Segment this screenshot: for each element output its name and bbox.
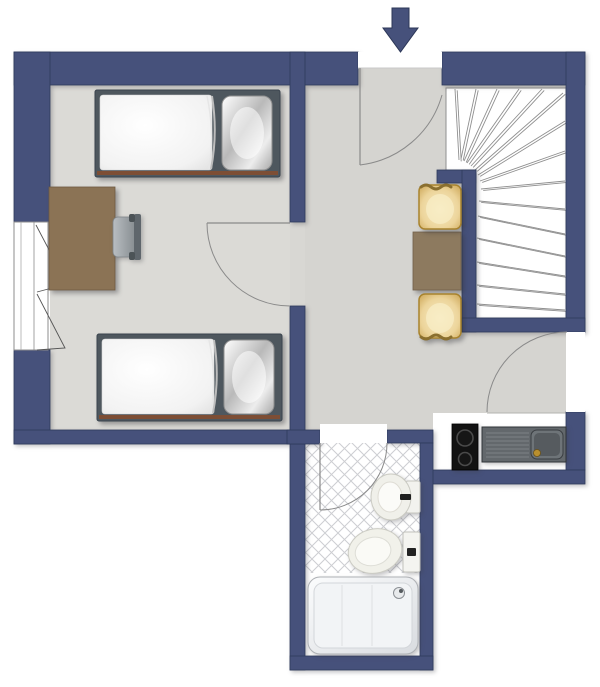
floor-plan-canvas bbox=[0, 0, 600, 687]
wall-bathroom-right bbox=[420, 443, 433, 670]
dining-chair-2 bbox=[419, 294, 461, 339]
wall-bedroom-right-lower bbox=[290, 306, 305, 444]
bathroom-threshold bbox=[320, 424, 387, 443]
desk-chair bbox=[113, 214, 141, 260]
wall-right-lower bbox=[566, 412, 585, 470]
faucet bbox=[534, 450, 541, 457]
cooktop bbox=[452, 424, 478, 470]
hall-furniture bbox=[413, 185, 461, 339]
wall-kitchen-bottom bbox=[420, 470, 585, 484]
dining-chair-1 bbox=[419, 185, 461, 229]
wall-right-upper bbox=[566, 52, 585, 332]
wall-bathroom-left bbox=[290, 444, 305, 670]
entrance-arrow-icon bbox=[383, 8, 418, 52]
drainboard bbox=[486, 433, 529, 457]
bidet-tap bbox=[400, 494, 411, 500]
burner-large bbox=[457, 430, 473, 446]
sink-unit bbox=[482, 427, 566, 462]
wall-bathroom-top-right bbox=[387, 430, 433, 443]
floor-plan bbox=[0, 0, 600, 687]
wall-top-right bbox=[442, 52, 585, 85]
wall-left-upper bbox=[14, 52, 50, 222]
flush-button bbox=[407, 548, 416, 556]
bedroom-doorway-floor bbox=[290, 222, 305, 306]
wall-bathroom-top-left bbox=[287, 430, 320, 444]
wall-bedroom-bottom bbox=[14, 430, 305, 444]
bed-1 bbox=[95, 90, 280, 177]
hall-door-leaf bbox=[566, 332, 585, 412]
burner-small bbox=[459, 453, 472, 466]
wall-stair-side bbox=[462, 170, 476, 332]
wall-top-left bbox=[14, 52, 358, 85]
entrance-threshold bbox=[358, 52, 442, 68]
desk-chair-backrest bbox=[134, 214, 141, 260]
wall-stair-bottom bbox=[462, 318, 585, 332]
entrance-floor-tongue bbox=[358, 68, 442, 85]
dining-table bbox=[413, 232, 461, 290]
desk bbox=[49, 187, 115, 290]
bathtub bbox=[308, 577, 418, 654]
tub-drain bbox=[394, 588, 405, 599]
bed-2 bbox=[97, 334, 282, 421]
bidet bbox=[371, 474, 420, 520]
wall-bathroom-bottom bbox=[290, 656, 433, 670]
wall-bedroom-right-upper bbox=[290, 52, 305, 222]
